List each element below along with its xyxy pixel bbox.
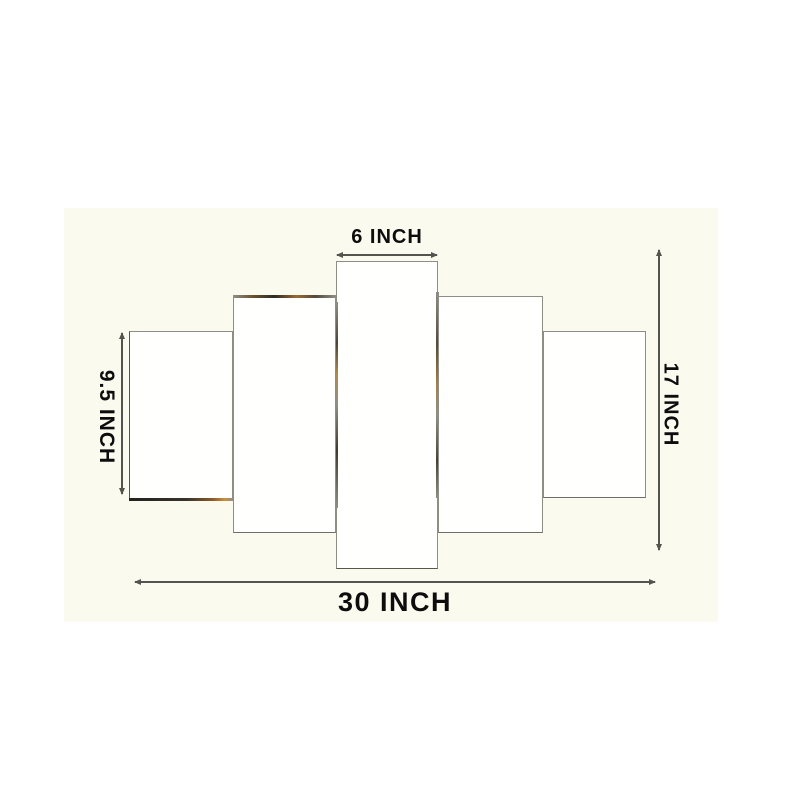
dimension-line-total-height (658, 250, 660, 550)
product-dimension-diagram: 6 INCH 9.5 INCH 17 INCH 30 INCH (0, 0, 800, 800)
arrow-up-icon (119, 332, 125, 339)
panel-outer-right (543, 331, 646, 498)
dimension-label-center-width: 6 INCH (287, 226, 487, 249)
dimension-line-outer-height (121, 333, 123, 494)
dimension-line-total-width (135, 581, 655, 583)
arrow-down-icon (656, 544, 662, 551)
arrow-down-icon (119, 488, 125, 495)
dimension-label-outer-height: 9.5 INCH (94, 367, 118, 467)
dimension-line-center-width (337, 254, 437, 256)
arrow-right-icon (649, 579, 656, 585)
arrow-right-icon (431, 252, 438, 258)
panel-mid-left (233, 296, 336, 533)
panel-center (336, 261, 438, 569)
dimension-label-total-height: 17 INCH (659, 362, 682, 448)
panel-outer-left (129, 331, 233, 500)
panel-mid-right (438, 296, 543, 533)
arrow-up-icon (656, 249, 662, 256)
arrow-left-icon (134, 579, 141, 585)
arrow-left-icon (336, 252, 343, 258)
dimension-label-total-width: 30 INCH (135, 587, 655, 618)
